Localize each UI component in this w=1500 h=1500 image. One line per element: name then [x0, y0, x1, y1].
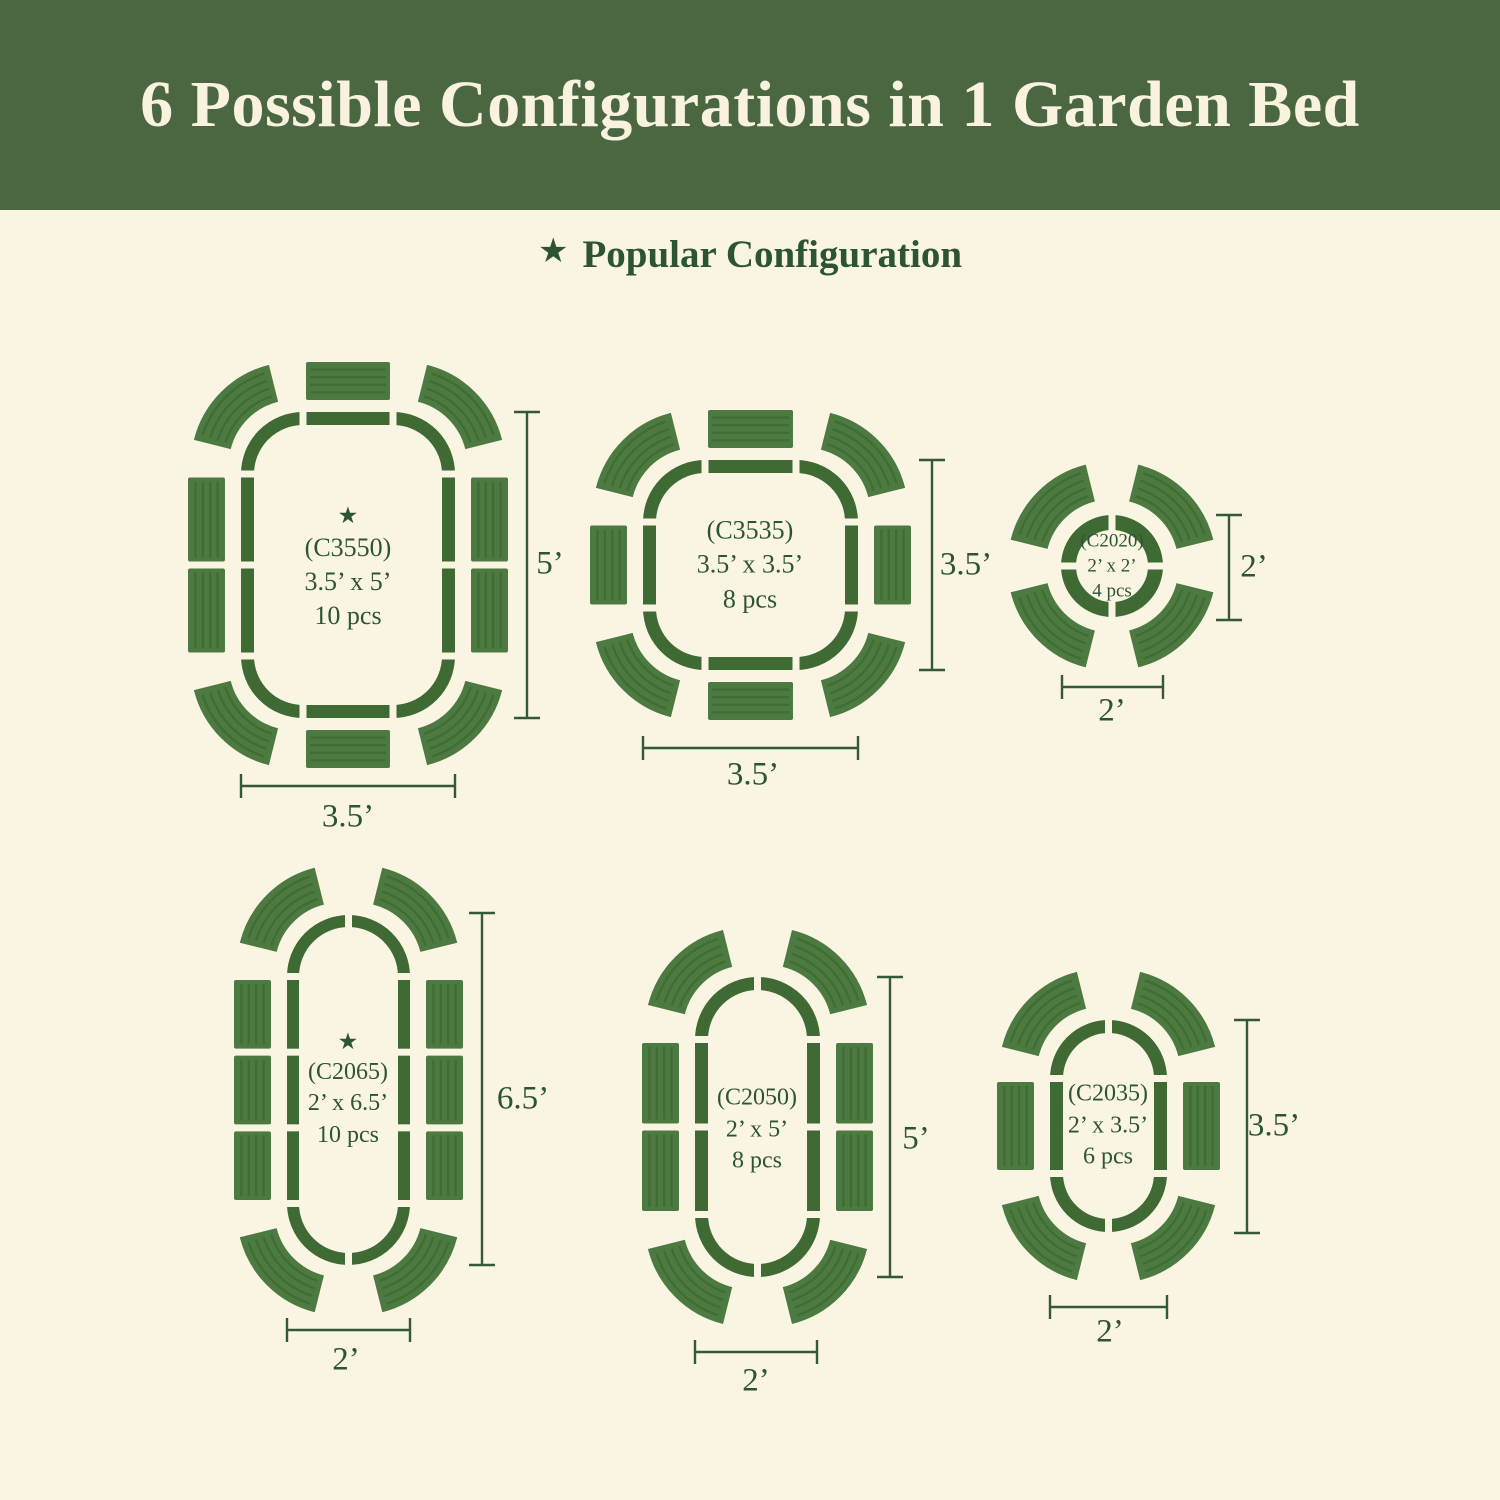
config-pieces: 4 pcs — [1080, 579, 1143, 604]
popular-star-icon: ★ — [308, 1028, 388, 1057]
width-dimension-label: 3.5’ — [322, 799, 374, 836]
height-dimension-label: 2’ — [1240, 549, 1268, 586]
height-dimension-label: 5’ — [536, 546, 564, 583]
legend-label: Popular Configuration — [582, 232, 962, 277]
config-info: ★ (C2020) 2’ x 2’ 4 pcs — [1080, 528, 1143, 603]
config-size: 3.5’ x 3.5’ — [697, 548, 803, 582]
config-code: (C3535) — [697, 514, 803, 548]
config-info: ★ (C2065) 2’ x 6.5’ 10 pcs — [308, 1028, 388, 1152]
config-info: ★ (C3535) 3.5’ x 3.5’ 8 pcs — [697, 514, 803, 617]
garden-bed-infographic: 6 Possible Configurations in 1 Garden Be… — [0, 0, 1500, 1500]
popular-star-icon: ★ — [305, 502, 392, 531]
width-dimension-label: 3.5’ — [727, 757, 779, 794]
config-code: (C2050) — [717, 1082, 797, 1114]
config-pieces: 10 pcs — [305, 600, 392, 634]
config-info: ★ (C2035) 2’ x 3.5’ 6 pcs — [1068, 1078, 1148, 1173]
config-size: 2’ x 2’ — [1080, 553, 1143, 578]
config-c2065: ★ (C2065) 2’ x 6.5’ 10 pcs 6.5’ 2’ — [180, 850, 620, 1420]
garden-bed-diagram — [950, 440, 1310, 770]
page-title: 6 Possible Configurations in 1 Garden Be… — [140, 67, 1360, 143]
config-c3550: ★ (C3550) 3.5’ x 5’ 10 pcs 5’ 3.5’ — [160, 340, 600, 860]
config-pieces: 10 pcs — [308, 1120, 388, 1152]
config-info: ★ (C2050) 2’ x 5’ 8 pcs — [717, 1082, 797, 1177]
garden-bed-diagram — [180, 850, 620, 1420]
width-dimension-label: 2’ — [1096, 1314, 1124, 1351]
garden-bed-diagram — [950, 950, 1390, 1410]
config-code: (C2035) — [1068, 1078, 1148, 1110]
config-size: 2’ x 5’ — [717, 1114, 797, 1146]
config-pieces: 8 pcs — [697, 582, 803, 616]
config-c2020: ★ (C2020) 2’ x 2’ 4 pcs 2’ 2’ — [950, 440, 1310, 770]
height-dimension-label: 3.5’ — [1248, 1108, 1300, 1145]
height-dimension-label: 5’ — [902, 1121, 930, 1158]
config-c3535: ★ (C3535) 3.5’ x 3.5’ 8 pcs 3.5’ 3.5’ — [570, 390, 1010, 820]
popular-configuration-legend: ★ Popular Configuration — [0, 232, 1500, 277]
width-dimension-label: 2’ — [742, 1363, 770, 1400]
width-dimension-label: 2’ — [1098, 693, 1126, 730]
header-banner: 6 Possible Configurations in 1 Garden Be… — [0, 0, 1500, 210]
config-code: (C3550) — [305, 531, 392, 565]
config-code: (C2020) — [1080, 528, 1143, 553]
config-size: 3.5’ x 5’ — [305, 565, 392, 599]
width-dimension-label: 2’ — [332, 1342, 360, 1379]
config-size: 2’ x 6.5’ — [308, 1089, 388, 1121]
config-info: ★ (C3550) 3.5’ x 5’ 10 pcs — [305, 502, 392, 634]
config-pieces: 8 pcs — [717, 1146, 797, 1178]
config-size: 2’ x 3.5’ — [1068, 1110, 1148, 1142]
config-pieces: 6 pcs — [1068, 1142, 1148, 1174]
height-dimension-label: 6.5’ — [497, 1081, 549, 1118]
config-c2035: ★ (C2035) 2’ x 3.5’ 6 pcs 3.5’ 2’ — [950, 950, 1390, 1410]
star-icon: ★ — [538, 235, 568, 269]
config-code: (C2065) — [308, 1057, 388, 1089]
